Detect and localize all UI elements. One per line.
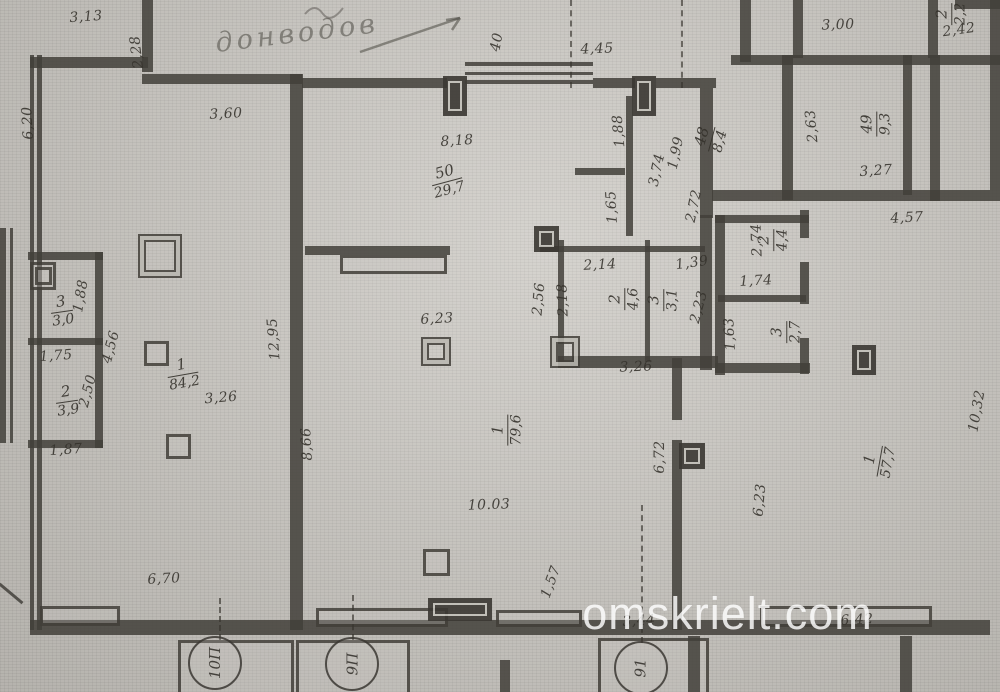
dim-line — [681, 0, 683, 88]
partition-wall — [575, 168, 625, 175]
window-line — [465, 62, 593, 66]
column — [679, 443, 705, 469]
wall — [142, 74, 302, 84]
wall — [731, 55, 1000, 65]
dim-label: 2,56 — [530, 282, 549, 316]
partition-wall — [28, 338, 103, 345]
dim-label: 6,23 — [751, 483, 770, 517]
wall — [0, 228, 6, 443]
column — [166, 434, 191, 459]
room-number-area-label: 179,6 — [490, 414, 523, 445]
wall — [302, 78, 447, 88]
dim-label: 6,72 — [652, 440, 668, 473]
partition-wall — [718, 295, 806, 302]
wall — [593, 78, 635, 88]
partition-wall — [715, 215, 809, 223]
wall — [800, 210, 809, 238]
room-number-area-label: 184,2 — [165, 355, 202, 393]
dim-label: 1,99 — [665, 135, 688, 171]
dim-label: 3,26 — [204, 389, 238, 408]
wall — [712, 190, 1000, 201]
room-number-area-label: 488,4 — [692, 123, 731, 156]
dim-label: 40 — [487, 31, 506, 52]
dim-label: 6,23 — [420, 310, 454, 328]
room-number-area-label: 24,4 — [756, 229, 789, 251]
floor-plan-scan: донводов 3,132,286,203,60404,458,183,002… — [0, 0, 1000, 692]
partition-wall — [28, 252, 103, 260]
room-number-area-label: 23,9 — [54, 383, 81, 419]
partition-wall — [540, 246, 705, 252]
counter-shelf — [340, 255, 447, 274]
dim-label: 2,63 — [803, 109, 822, 143]
diagonal-tick — [0, 583, 23, 605]
column — [423, 549, 450, 576]
wall — [10, 228, 13, 443]
wall — [793, 0, 803, 58]
dim-label: 8,66 — [298, 427, 316, 461]
dim-label: 3,13 — [69, 8, 103, 26]
wall — [500, 660, 510, 692]
window-sill — [40, 606, 120, 626]
dim-label: 3,00 — [821, 16, 855, 33]
window-line — [465, 72, 593, 75]
dim-label: 10.03 — [467, 496, 510, 513]
dim-label: 3,74 — [646, 152, 669, 188]
dim-label: 1,75 — [39, 347, 73, 365]
wall — [672, 358, 682, 420]
watermark: omskrielt.com — [455, 588, 1000, 640]
wall — [715, 363, 810, 373]
wall — [290, 74, 303, 630]
column — [852, 345, 876, 375]
room-number-area-label: 33,1 — [646, 289, 679, 311]
wall — [900, 636, 912, 692]
room-number-area-label: 24,6 — [607, 288, 640, 310]
room-number-area-label: 33,0 — [49, 293, 76, 329]
room-number-area-label: 157,7 — [860, 443, 898, 480]
pier-column — [443, 76, 467, 116]
dim-label: 1,87 — [49, 441, 83, 459]
dim-label: 1,88 — [70, 278, 92, 313]
dim-label: 2,14 — [583, 256, 617, 274]
dim-label: 1,63 — [721, 317, 739, 351]
room-number-area-label: 22,2 — [934, 3, 967, 25]
fixture — [35, 267, 52, 285]
dim-line — [570, 0, 572, 88]
dim-label: 1,88 — [610, 114, 629, 148]
handwritten-arrow — [300, 0, 540, 60]
column — [421, 337, 451, 366]
dim-label: 12,95 — [265, 317, 284, 361]
wall — [740, 0, 751, 62]
axis-marker: 9П — [325, 637, 379, 691]
axis-marker: 91 — [614, 641, 668, 692]
room-number-area-label: 5029,7 — [428, 161, 467, 201]
pier-column — [632, 76, 656, 116]
room-number-area-label: 499,3 — [859, 111, 892, 136]
dim-label: 8,18 — [440, 132, 474, 150]
dim-label: 4,45 — [580, 40, 614, 57]
counter-line — [305, 246, 450, 255]
dim-label: 4,57 — [890, 209, 924, 227]
wall — [990, 0, 1000, 190]
wall — [656, 78, 716, 88]
window-sill — [465, 80, 593, 84]
column — [138, 234, 182, 278]
dim-label: 6,20 — [19, 106, 37, 140]
partition-wall — [626, 96, 633, 236]
dim-line — [352, 595, 354, 640]
column — [550, 336, 580, 368]
dim-label: 10,32 — [965, 389, 988, 434]
axis-marker: 10П — [188, 636, 242, 690]
wall — [688, 636, 700, 692]
wall — [903, 55, 912, 195]
column — [534, 226, 559, 252]
dim-label: 1,65 — [603, 190, 621, 224]
dim-label: 3,26 — [619, 358, 653, 375]
dim-label: 1,74 — [739, 272, 773, 290]
dim-label: 3,60 — [209, 105, 243, 123]
wall — [782, 55, 793, 200]
dim-label: 3,27 — [859, 162, 893, 180]
wall — [930, 55, 940, 201]
dim-label: 6,70 — [147, 570, 181, 588]
room-number-area-label: 32,7 — [769, 321, 802, 343]
dim-label: 2,18 — [554, 283, 571, 317]
dim-line — [219, 598, 221, 640]
